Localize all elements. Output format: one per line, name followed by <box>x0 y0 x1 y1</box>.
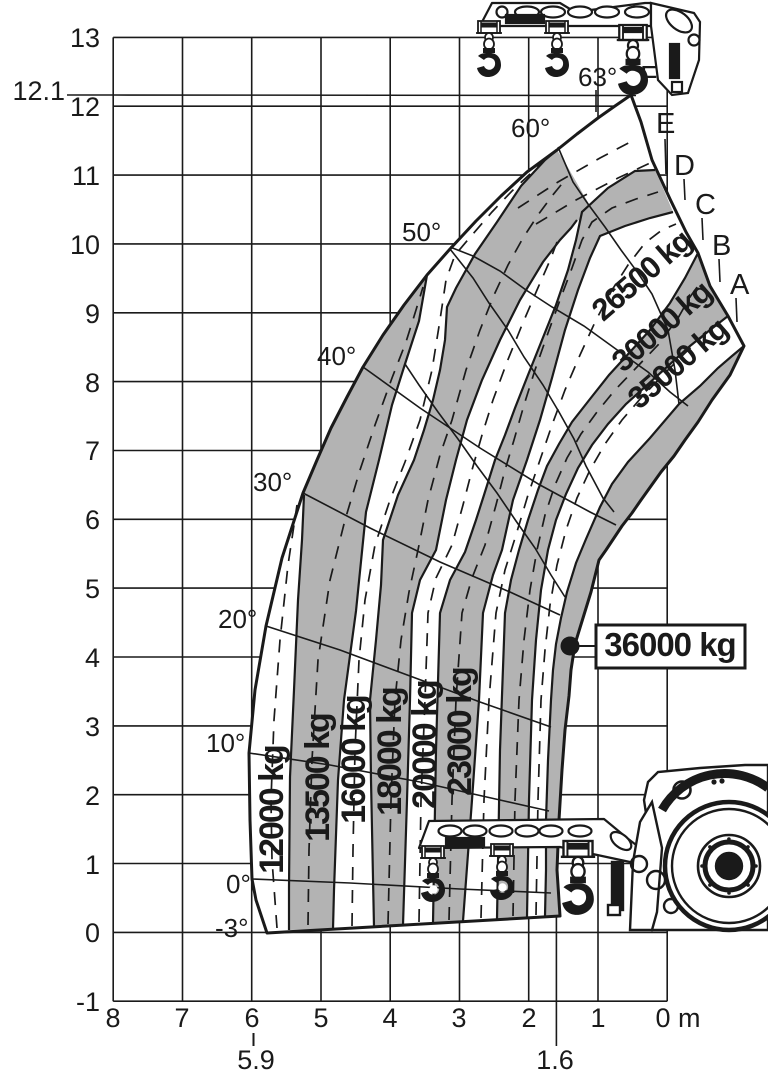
svg-text:C: C <box>695 189 716 221</box>
svg-text:20000 kg: 20000 kg <box>406 681 444 809</box>
svg-text:10°: 10° <box>206 728 245 758</box>
svg-text:7: 7 <box>85 436 100 466</box>
svg-text:5: 5 <box>85 574 100 604</box>
svg-text:3: 3 <box>451 1003 466 1033</box>
svg-text:8: 8 <box>105 1003 120 1033</box>
svg-text:16000 kg: 16000 kg <box>335 696 373 824</box>
svg-text:9: 9 <box>85 299 100 329</box>
svg-text:7: 7 <box>174 1003 189 1033</box>
svg-text:3: 3 <box>85 712 100 742</box>
svg-text:36000 kg: 36000 kg <box>604 626 735 663</box>
svg-text:B: B <box>712 230 731 262</box>
svg-text:1.6: 1.6 <box>536 1045 574 1075</box>
svg-text:A: A <box>730 269 750 301</box>
svg-text:40°: 40° <box>317 341 356 371</box>
svg-text:30°: 30° <box>253 467 292 497</box>
svg-text:12: 12 <box>70 92 100 122</box>
svg-text:0: 0 <box>85 918 100 948</box>
svg-text:5.9: 5.9 <box>237 1045 275 1075</box>
svg-text:1: 1 <box>590 1003 605 1033</box>
svg-text:8: 8 <box>85 368 100 398</box>
svg-text:18000 kg: 18000 kg <box>371 688 409 816</box>
svg-text:6: 6 <box>244 1003 259 1033</box>
svg-text:D: D <box>674 150 695 182</box>
svg-text:1: 1 <box>85 850 100 880</box>
svg-text:2: 2 <box>521 1003 536 1033</box>
svg-text:12000 kg: 12000 kg <box>253 746 291 874</box>
svg-text:2: 2 <box>85 781 100 811</box>
svg-text:63°: 63° <box>578 62 617 92</box>
svg-text:13500 kg: 13500 kg <box>299 714 337 842</box>
svg-text:6: 6 <box>85 505 100 535</box>
svg-text:-3°: -3° <box>215 913 249 943</box>
svg-text:12.1: 12.1 <box>12 76 65 106</box>
svg-text:5: 5 <box>313 1003 328 1033</box>
svg-text:11: 11 <box>72 161 100 191</box>
svg-text:60°: 60° <box>511 113 550 143</box>
svg-text:10: 10 <box>70 230 100 260</box>
svg-text:4: 4 <box>85 643 100 673</box>
svg-text:50°: 50° <box>402 217 441 247</box>
svg-text:13: 13 <box>70 23 100 53</box>
svg-text:23000 kg: 23000 kg <box>441 668 479 796</box>
svg-text:0°: 0° <box>226 869 251 899</box>
svg-text:4: 4 <box>382 1003 397 1033</box>
svg-text:-1: -1 <box>76 987 100 1017</box>
svg-text:E: E <box>656 108 675 140</box>
svg-text:20°: 20° <box>218 604 257 634</box>
svg-text:0 m: 0 m <box>655 1003 700 1033</box>
